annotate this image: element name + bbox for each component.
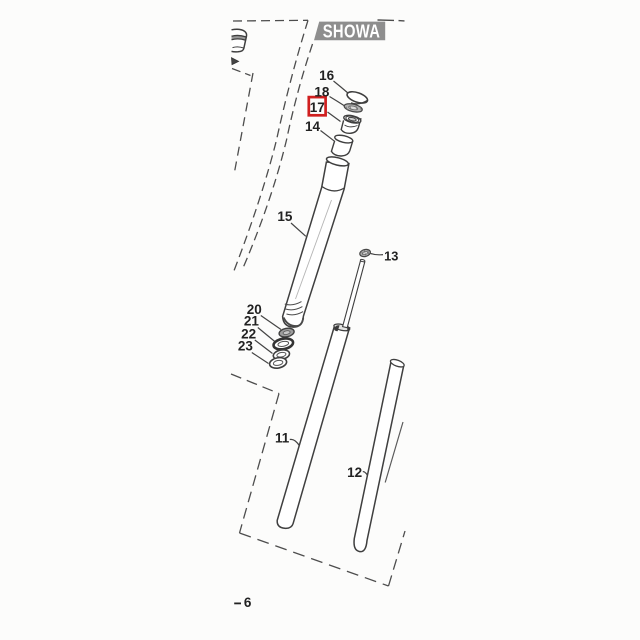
svg-text:SHOWA: SHOWA [323,21,381,42]
svg-text:11: 11 [275,430,290,445]
svg-text:6: 6 [244,595,252,610]
svg-text:18: 18 [314,84,330,99]
svg-text:17: 17 [310,100,325,115]
svg-text:16: 16 [319,68,335,83]
svg-text:12: 12 [347,465,362,480]
svg-text:14: 14 [305,119,321,134]
svg-text:13: 13 [384,248,398,263]
svg-text:15: 15 [277,209,293,224]
svg-text:23: 23 [238,339,254,354]
